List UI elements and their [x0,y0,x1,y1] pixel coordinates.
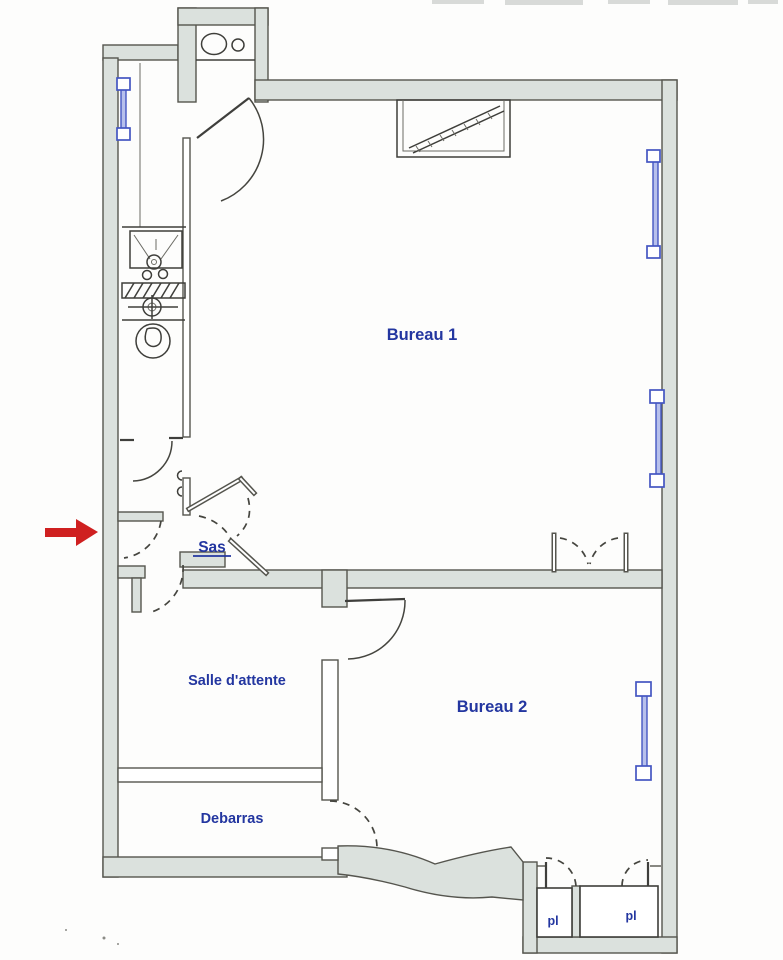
room-label-salle-attente: Salle d'attente [188,673,286,689]
radiator-icon [647,150,660,258]
door-bathroom [120,438,183,481]
wall-stub-sas-left [118,566,145,578]
hinge-hook-icon [178,487,182,496]
wall-closet-left [523,862,537,953]
room-label-debarras: Debarras [201,811,264,827]
wall-top-main [255,80,677,100]
partition-salle-debarras [118,768,322,782]
room-label-bureau2: Bureau 2 [457,698,528,716]
tap-circle-icon [232,39,244,51]
door-toilet-room [197,98,264,201]
room-label-pl-right: pl [625,909,636,923]
shower-icon [130,231,182,269]
door-bureau2 [345,599,405,659]
wall-bottom-left [103,857,347,877]
toilet-room-fixtures [196,34,255,61]
door-debarras [330,801,377,848]
partition-bathroom [183,138,190,437]
wall-curved-bottom [338,846,523,900]
floor-plan-svg: Bureau 1 Bureau 2 Salle d'attente Debarr… [0,0,783,960]
wall-stub-bureau2-door [322,570,347,607]
wall-stub-entrance [118,512,163,521]
floor-plan-page: Bureau 1 Bureau 2 Salle d'attente Debarr… [0,0,783,960]
hinge-hook-icon [178,471,182,480]
entrance-door-leaf [132,578,141,612]
entrance-arrow-icon [45,519,98,546]
room-label-sas: Sas [198,539,226,556]
counter-hatch-icon [122,283,185,298]
closet-pl-right [580,886,658,937]
radiator-icon [636,682,651,780]
wall-right [662,80,677,953]
room-labels: Bureau 1 Bureau 2 Salle d'attente Debarr… [188,326,636,928]
interior-walls [118,138,338,860]
sink-oval-icon [202,34,227,55]
bathroom-fixtures [122,63,186,496]
room-label-bureau1: Bureau 1 [387,326,458,344]
partition-salle-bureau2 [322,660,338,800]
wc-icon [136,324,170,358]
closet-pl-left [537,888,572,937]
tap-circle-icon [143,271,152,280]
wall-closet-divider [572,886,580,937]
tap-circle-icon [159,270,168,279]
door-double-bureau1 [554,535,626,570]
room-label-pl-left: pl [547,914,558,928]
partition-debarras-stub [322,848,338,860]
chimney-hatch-icon [397,100,510,157]
wall-closet-bottom [523,937,677,953]
wall-left [103,58,118,877]
radiator-icon [117,78,130,140]
wall-band-middle [183,570,662,588]
